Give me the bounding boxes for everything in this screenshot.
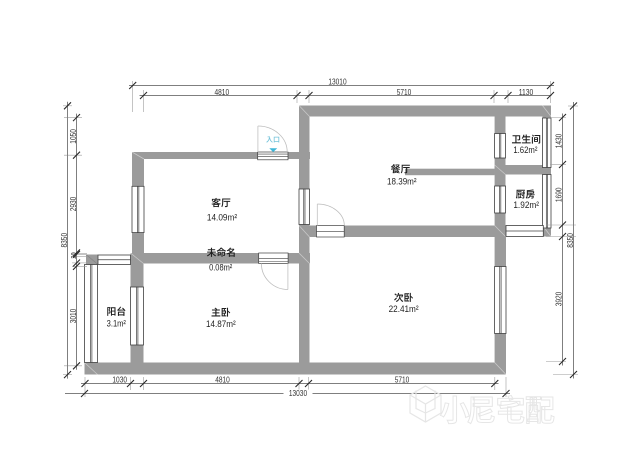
svg-text:1430: 1430 [554,133,564,148]
svg-text:14.87m²: 14.87m² [206,319,236,329]
svg-text:5710: 5710 [397,87,412,97]
svg-text:1030: 1030 [112,375,127,385]
svg-text:1050: 1050 [68,129,78,144]
svg-text:1690: 1690 [554,187,564,202]
svg-text:22.41m²: 22.41m² [389,304,419,314]
svg-text:4810: 4810 [215,375,230,385]
svg-text:8350: 8350 [565,233,575,248]
svg-text:1.62m²: 1.62m² [513,145,537,155]
svg-text:0.08m²: 0.08m² [209,262,232,272]
svg-text:3010: 3010 [68,308,78,323]
svg-text:14.09m²: 14.09m² [207,213,237,223]
svg-text:3920: 3920 [554,291,564,306]
svg-text:13030: 13030 [289,388,307,398]
svg-text:4810: 4810 [215,87,230,97]
svg-text:8350: 8350 [59,233,69,248]
svg-text:5710: 5710 [395,375,410,385]
svg-text:1.92m²: 1.92m² [513,200,539,210]
svg-text:2930: 2930 [68,196,78,211]
svg-text:18.39m²: 18.39m² [387,177,417,187]
svg-text:3.1m²: 3.1m² [107,318,126,328]
svg-text:1130: 1130 [519,87,534,97]
svg-text:20: 20 [69,252,78,259]
svg-text:13010: 13010 [328,76,346,86]
